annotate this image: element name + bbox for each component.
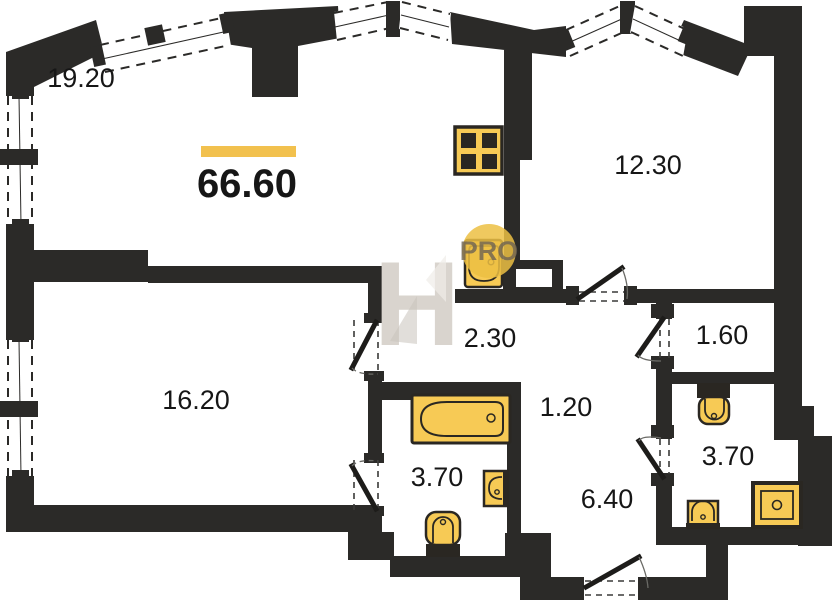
wall-segment [32, 250, 148, 282]
window-mullion [0, 401, 38, 417]
door [639, 437, 669, 477]
window [334, 1, 391, 41]
window [0, 90, 38, 228]
door-jamb [364, 371, 384, 381]
wall-segment [390, 556, 522, 577]
wall-segment [706, 543, 728, 600]
shower-symbol [753, 483, 801, 527]
stove-symbol [455, 127, 502, 174]
window [557, 4, 627, 57]
floor-plan-canvas: H [0, 0, 838, 600]
shaft-opening [516, 269, 552, 287]
pro-badge-label: PRO [460, 236, 519, 266]
room-label-2-30: 2.30 [464, 323, 517, 353]
door-jamb [566, 286, 579, 305]
room-label-3-70-mid: 3.70 [411, 462, 464, 492]
floor-plan: H [0, 0, 838, 600]
wall-segment [6, 224, 34, 340]
door [352, 460, 378, 510]
door-jamb [624, 286, 637, 305]
wall-segment [656, 372, 774, 384]
door [579, 268, 627, 301]
toilet-symbol [697, 383, 730, 424]
wall-segment [656, 527, 832, 545]
sink-symbol [686, 501, 720, 529]
room-label-1-20: 1.20 [540, 392, 593, 422]
room-label-1-60: 1.60 [696, 320, 749, 350]
door-jamb [651, 356, 674, 369]
room-label-6-40: 6.40 [581, 484, 634, 514]
total-area-label: 66.60 [197, 162, 297, 206]
wall-segment [6, 505, 372, 532]
wall-segment [504, 50, 532, 160]
window [0, 333, 38, 479]
door-jamb [651, 425, 674, 438]
wall-segment [368, 400, 382, 458]
wall-segment [148, 266, 382, 283]
window [399, 1, 451, 41]
wall-segment [505, 533, 551, 577]
watermark: H [374, 237, 461, 371]
total-area-underline [201, 146, 296, 157]
wall-segment [224, 6, 340, 97]
room-label-19-20: 19.20 [47, 63, 115, 93]
wall-segment [520, 577, 584, 600]
window-mullion [386, 1, 400, 37]
door [638, 319, 669, 361]
bathtub-symbol [412, 395, 510, 443]
wall-segment [6, 52, 34, 96]
toilet-symbol [426, 512, 460, 557]
wall-segment [774, 406, 814, 438]
sink-symbol [484, 471, 509, 506]
room-label-12-30: 12.30 [614, 150, 682, 180]
wall-segment [774, 6, 802, 440]
room-label-3-70-right: 3.70 [702, 441, 755, 471]
wall-segment [638, 577, 710, 600]
window-mullion [144, 24, 165, 45]
wall-segment [626, 289, 774, 303]
door-jamb [364, 453, 384, 463]
room-label-16-20: 16.20 [162, 385, 230, 415]
wall-segment [348, 532, 394, 560]
window-mullion [0, 149, 38, 165]
